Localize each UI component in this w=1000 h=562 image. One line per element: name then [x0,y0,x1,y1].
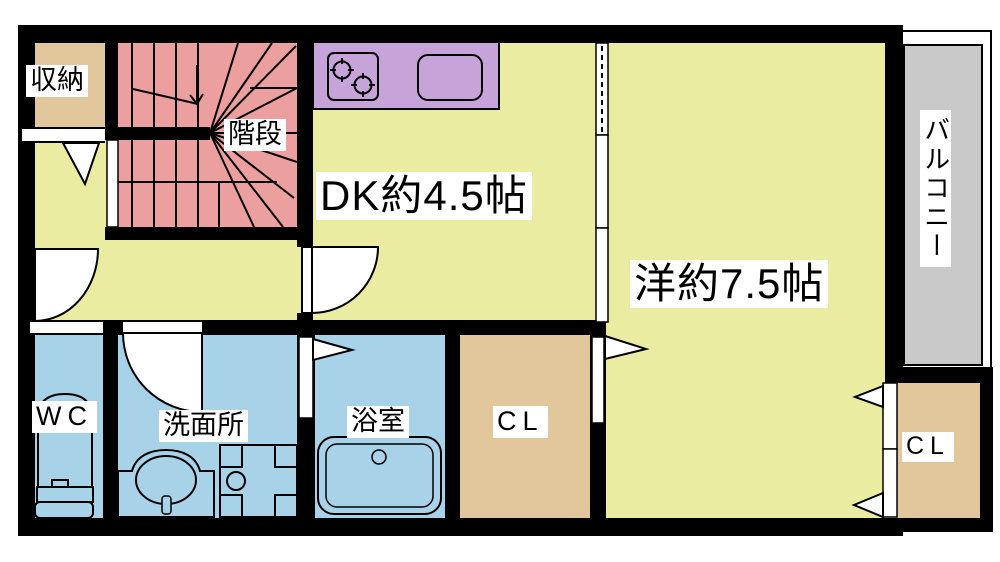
room-label-stairs: 階段 [224,119,286,151]
washing-machine-pan [220,445,297,517]
room-label-wc: WC [32,401,97,433]
room-label-bathroom: 浴室 [347,406,409,438]
vanity-sink [118,450,214,517]
room-label-western: 洋約7.5帖 [630,260,828,308]
stove [328,53,378,100]
room-label-closet-main: CL [493,406,548,438]
room-label-balcony: バルコニー [920,110,951,267]
kitchen-sink [418,55,482,100]
floor-plan: 収納 階段 DK約4.5帖 洋約7.5帖 バルコニー WC 洗面所 浴室 CL … [0,0,1000,562]
bathtub [318,437,441,514]
storage-door [22,128,105,184]
bathroom-door [299,337,352,418]
closet-bedroom-doors [854,383,897,517]
wc-doorway [30,320,103,335]
dk-door [302,247,378,313]
hall-door-swing [35,249,98,321]
room-label-dk: DK約4.5帖 [316,172,532,220]
room-label-closet-bedroom: CL [902,432,954,462]
room-label-washroom: 洗面所 [159,410,248,442]
plan-linework [0,0,1000,562]
sliding-partition [596,43,608,322]
stairs-left-strip [107,140,118,227]
washroom-door-swing [123,333,202,412]
room-label-storage: 収納 [26,65,88,97]
closet-main-door [592,336,646,423]
